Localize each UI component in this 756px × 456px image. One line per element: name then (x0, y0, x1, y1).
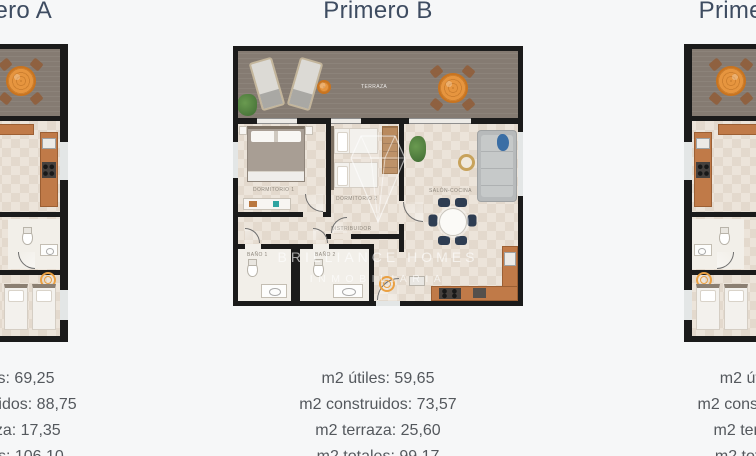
window (60, 290, 68, 320)
terrace-table (438, 73, 468, 103)
wall-segment (684, 44, 756, 49)
logo-door-emblem (379, 276, 395, 292)
floorplan-graphic: TERRAZA (233, 46, 523, 306)
stat-totales: m2 totales: 99,17 (158, 444, 598, 456)
room-label-dormitorio2: DORMITORIO 2 (336, 196, 377, 202)
toilet (247, 262, 258, 277)
double-bed (247, 126, 305, 182)
nightstand (239, 126, 247, 135)
stat-terraza: m2 terraza: 25,60 (158, 418, 598, 444)
dining-chair (438, 236, 450, 245)
window (518, 132, 523, 196)
dining-chair (429, 215, 438, 227)
dining-chair (455, 198, 467, 207)
entrance-door-gap (376, 301, 400, 306)
dining-chair (438, 198, 450, 207)
bath-vanity (333, 284, 363, 298)
unit-stats: m2 útiles: 59,65 m2 construidos: 73,57 m… (158, 366, 598, 456)
stat-utiles: m2 útiles: (534, 366, 756, 392)
appliance (473, 288, 486, 298)
unit-title: Primero C (534, 0, 756, 25)
floorplan-graphic (684, 44, 756, 344)
bath-vanity (694, 244, 712, 256)
wall-segment (0, 212, 64, 217)
decor-item (273, 201, 279, 207)
floorplan-carousel: Primero A (0, 0, 756, 456)
unit-title: Primero B (158, 0, 598, 25)
room-label-salon: SALÓN-COCINA (429, 188, 472, 194)
door-gap (313, 244, 329, 249)
terrace-table (716, 66, 746, 96)
bath-vanity (261, 284, 287, 298)
nightstand (305, 126, 313, 135)
unit-card-primero-c: Primero C (534, 0, 756, 456)
wall-segment (688, 212, 756, 217)
stat-utiles: m2 útiles: 59,65 (158, 366, 598, 392)
wall-segment (399, 124, 404, 252)
stat-terraza: m2 terraza: (534, 418, 756, 444)
kitchen-counter (0, 124, 34, 135)
stove (696, 162, 710, 178)
door-gap (245, 244, 261, 249)
window (233, 142, 238, 178)
door-gap (303, 212, 323, 217)
decor-item (249, 201, 257, 207)
wall-segment (684, 116, 756, 121)
wall-segment (233, 46, 523, 51)
kitchen-sink (42, 138, 56, 149)
appliance (409, 276, 425, 286)
wardrobe (382, 126, 398, 174)
slider-door (409, 118, 471, 124)
kitchen-sink (504, 252, 516, 266)
door-gap (331, 234, 351, 239)
window (60, 142, 68, 180)
wall-segment (0, 116, 68, 121)
unit-card-primero-b: Primero B TERRAZA (158, 0, 598, 456)
window (684, 142, 692, 180)
plant (237, 94, 257, 116)
person (497, 134, 509, 151)
room-label-bano1: BAÑO 1 (247, 252, 268, 258)
dining-chair (468, 215, 477, 227)
coffee-table (458, 154, 475, 171)
floorplan-image-primero-b[interactable]: TERRAZA (233, 46, 523, 306)
stove (42, 162, 56, 178)
wall-segment (369, 244, 374, 301)
kitchen-counter (718, 124, 756, 135)
toilet (719, 230, 730, 245)
wall-segment (0, 336, 68, 342)
single-bed (4, 284, 28, 330)
kitchen-sink (696, 138, 710, 149)
dining-table (439, 208, 467, 236)
bath-vanity (40, 244, 58, 256)
slider-door (331, 118, 361, 124)
room-label-bano2: BAÑO 2 (315, 252, 336, 258)
floorplan-image-primero-c[interactable] (684, 44, 756, 344)
unit-stats: m2 útiles: m2 construidos: m2 terraza: m… (534, 366, 756, 456)
wall-segment (684, 336, 756, 342)
single-bed (334, 162, 378, 188)
terrace-side-table (317, 80, 331, 94)
window (684, 290, 692, 320)
single-bed (334, 128, 378, 154)
single-bed (32, 284, 56, 330)
room-label-terraza: TERRAZA (361, 84, 387, 90)
toilet (313, 262, 324, 277)
stove (439, 288, 461, 299)
single-bed (696, 284, 720, 330)
floorplan-image-primero-a[interactable] (0, 44, 68, 344)
slider-door (257, 118, 297, 124)
floorplan-graphic (0, 44, 68, 344)
single-bed (724, 284, 748, 330)
dining-chair (455, 236, 467, 245)
toilet (22, 230, 33, 245)
terrace-table (6, 66, 36, 96)
wall-segment (291, 244, 300, 301)
wall-segment (0, 44, 68, 49)
stat-construidos: m2 construidos: (534, 392, 756, 418)
stat-totales: m2 totales: (534, 444, 756, 456)
room-label-dormitorio1: DORMITORIO 1 (253, 187, 294, 193)
plant (409, 136, 426, 162)
stat-construidos: m2 construidos: 73,57 (158, 392, 598, 418)
